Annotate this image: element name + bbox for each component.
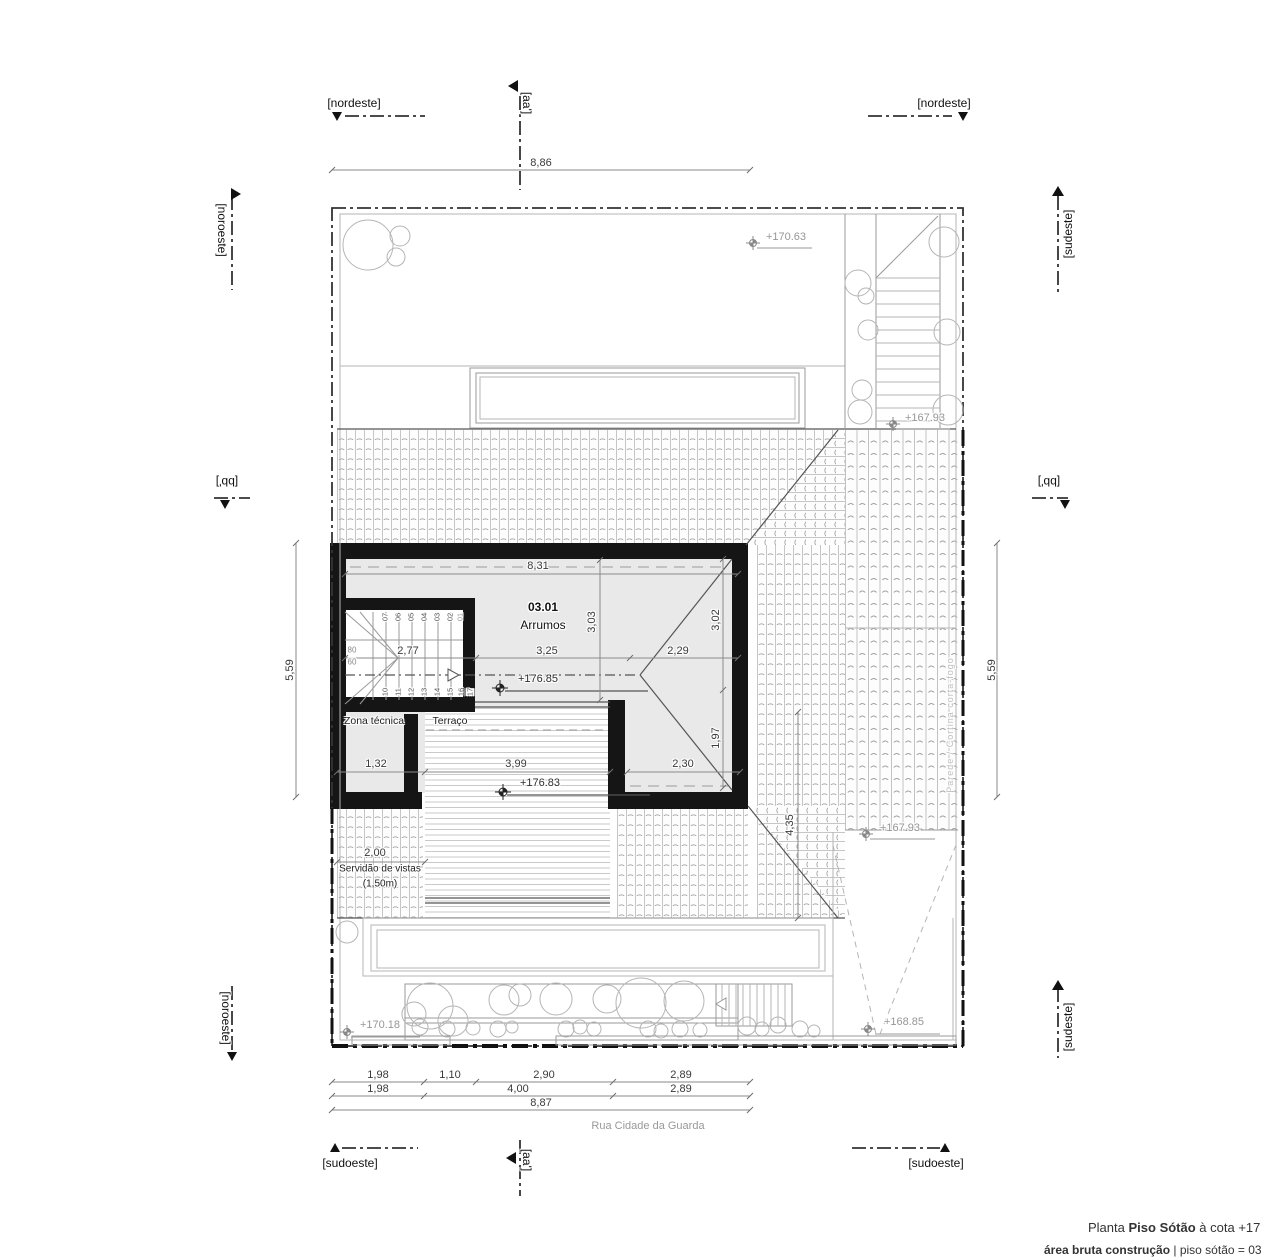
section-marker-right-top: [sudeste]	[1061, 210, 1075, 259]
section-marker-right-bottom: [sudeste]	[1061, 1003, 1075, 1052]
sheet-title: Planta Piso Sótão à cota +17	[1088, 1220, 1260, 1235]
stair-landing-60: 60	[348, 658, 357, 667]
dim-right-lower: 1,97	[710, 727, 722, 748]
servidao-label-2: (1,50m)	[363, 879, 397, 890]
dim-top: 8,86	[530, 157, 551, 169]
servidao-label-1: Servidão de vistas	[339, 864, 421, 875]
stair-tread-16: 16	[457, 688, 466, 696]
sheet-area-label: área bruta construção	[1044, 1243, 1170, 1257]
section-marker-top-left: [nordeste]	[327, 96, 380, 110]
level-terrace: +176.83	[520, 777, 560, 789]
stair-tread-17: 17	[466, 688, 475, 696]
terrace-decking	[425, 708, 610, 918]
dim-terrace-depth: 4,35	[784, 814, 796, 835]
stair-tread-10: 10	[381, 688, 390, 696]
level-garden-top: +170.63	[766, 231, 806, 243]
stair-tread-06: 06	[394, 613, 403, 621]
firewall-hatch-strip	[845, 430, 958, 830]
stair-tread-01: 01	[456, 613, 465, 621]
dim-stair-run: 2,77	[397, 645, 418, 657]
level-stair-mid: +167.93	[905, 412, 945, 424]
level-garden-left: +170.18	[360, 1019, 400, 1031]
section-marker-bottom-left: [sudoeste]	[322, 1156, 377, 1170]
sheet-title-prefix: Planta	[1088, 1220, 1125, 1235]
wall-top	[330, 543, 748, 559]
stair-tread-14: 14	[433, 688, 442, 696]
section-marker-top-right: [nordeste]	[917, 96, 970, 110]
stair-tread-11: 11	[394, 688, 403, 696]
section-marker-left-top: [noroeste]	[215, 203, 229, 256]
stair-tread-02: 02	[446, 613, 455, 621]
sheet-area-line: área bruta construção | piso sótão = 03	[1044, 1243, 1262, 1257]
wall-stair-top	[343, 598, 465, 610]
stair-tread-04: 04	[420, 613, 429, 621]
wall-leg-left	[608, 700, 625, 800]
stair-landing-80: 80	[348, 646, 357, 655]
wall-left	[330, 543, 346, 809]
dim-b3: 8,87	[530, 1097, 551, 1109]
sheet-area-value: | piso sótão = 03	[1170, 1243, 1262, 1257]
sheet-title-suffix: à cota +17	[1196, 1220, 1261, 1235]
section-marker-bb-left: [bb']	[216, 475, 238, 489]
wall-bottom-right	[608, 792, 748, 809]
section-marker-aa-bottom: [aa']	[520, 1149, 534, 1171]
section-marker-bottom-right: [sudoeste]	[908, 1156, 963, 1170]
room-name: Arrumos	[520, 618, 565, 632]
dim-servidao: 2,00	[364, 847, 385, 859]
stair-tread-07: 07	[381, 613, 390, 621]
dim-right-upper: 3,02	[710, 609, 722, 630]
dim-b1a: 1,98	[367, 1069, 388, 1081]
dim-b1c: 2,90	[533, 1069, 554, 1081]
section-marker-bb-right: [bb']	[1038, 475, 1060, 489]
level-roof-right: +167.93	[880, 822, 920, 834]
dim-side-left: 5,59	[284, 659, 296, 680]
stair-tread-03: 03	[433, 613, 442, 621]
level-driveway: +168.85	[884, 1016, 924, 1028]
stair-tread-15: 15	[446, 688, 455, 696]
terraco-label: Terraço	[432, 715, 467, 727]
dim-b2a: 1,98	[367, 1083, 388, 1095]
level-attic: +176.85	[518, 673, 558, 685]
wall-zona-right	[404, 714, 418, 796]
stair-tread-12: 12	[407, 688, 416, 696]
dim-room-depth: 3,03	[586, 611, 598, 632]
section-marker-left-bottom: [noroeste]	[219, 991, 233, 1044]
dim-terrace-width: 3,99	[505, 758, 526, 770]
section-marker-aa-top: [aa']	[520, 92, 534, 114]
street-label: Rua Cidade da Guarda	[591, 1120, 704, 1132]
stair-tread-13: 13	[420, 688, 429, 696]
dim-b2b: 4,00	[507, 1083, 528, 1095]
dim-b1d: 2,89	[670, 1069, 691, 1081]
sheet-title-name: Piso Sótão	[1129, 1220, 1196, 1235]
roof-hatch-center-low	[617, 806, 748, 918]
wall-right	[732, 543, 748, 809]
floor-plan-sheet: { "sheet": { "title_prefix": "Planta", "…	[0, 0, 1262, 1256]
wall-under-stair	[343, 697, 475, 712]
dim-room-width: 8,31	[527, 560, 548, 572]
dim-b1b: 1,10	[439, 1069, 460, 1081]
dim-leg-width: 2,30	[672, 758, 693, 770]
dim-hip-right: 2,29	[667, 645, 688, 657]
room-number: 03.01	[528, 600, 558, 614]
stair-tread-05: 05	[407, 613, 416, 621]
dim-side-right: 5,59	[986, 659, 998, 680]
zona-tecnica-label: Zona técnica	[344, 715, 404, 727]
dim-zona-width: 1,32	[365, 758, 386, 770]
dim-room-mid: 3,25	[536, 645, 557, 657]
firewall-label: Parede / Cortina corta-fogo	[945, 657, 955, 793]
dim-b2c: 2,89	[670, 1083, 691, 1095]
